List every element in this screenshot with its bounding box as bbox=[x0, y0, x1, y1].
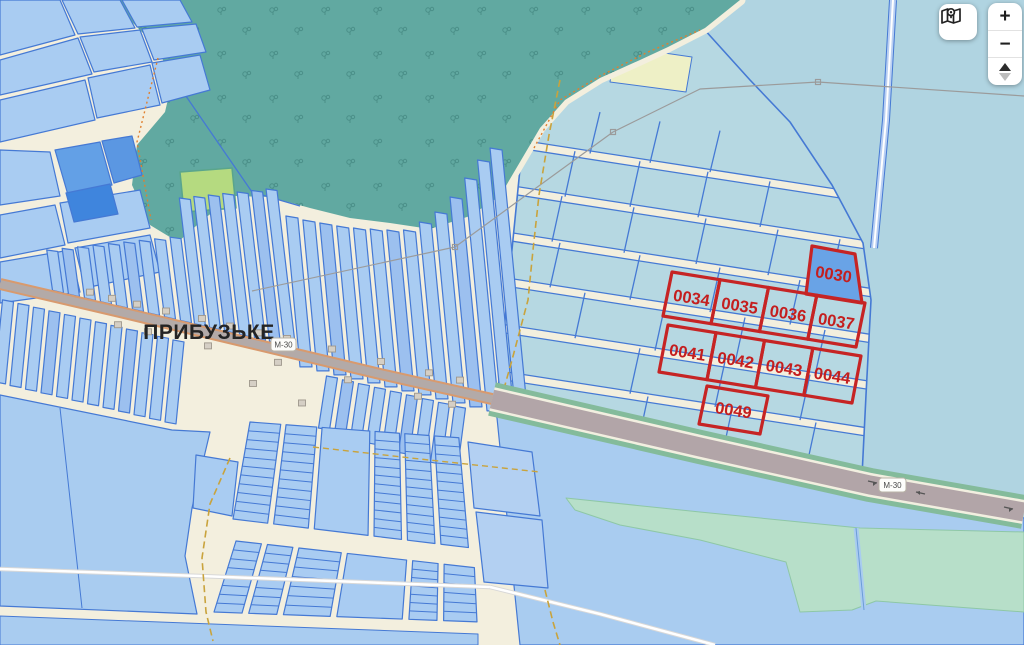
zoom-in-button[interactable]: + bbox=[988, 3, 1022, 30]
triangle-down-icon bbox=[999, 73, 1011, 81]
pan-updown-button[interactable] bbox=[988, 57, 1022, 85]
map-viewport[interactable]: 0030 0034 0035 0036 0037 0041 0042 0043 … bbox=[0, 0, 1024, 645]
map-pin-icon bbox=[939, 4, 963, 28]
road-shield-label: М-30 bbox=[883, 481, 902, 490]
road-shield-west: М-30 bbox=[271, 338, 296, 351]
road-shield-label: М-30 bbox=[274, 341, 293, 350]
road-shield-east: М-30 bbox=[879, 478, 906, 492]
triangle-up-icon bbox=[999, 63, 1011, 71]
map-canvas[interactable]: 0030 0034 0035 0036 0037 0041 0042 0043 … bbox=[0, 0, 1024, 645]
place-label: ПРИБУЗЬКЕ bbox=[143, 321, 274, 344]
zoom-out-button[interactable]: − bbox=[988, 30, 1022, 58]
zoom-control: + − bbox=[988, 3, 1022, 85]
layers-button[interactable] bbox=[939, 4, 977, 40]
